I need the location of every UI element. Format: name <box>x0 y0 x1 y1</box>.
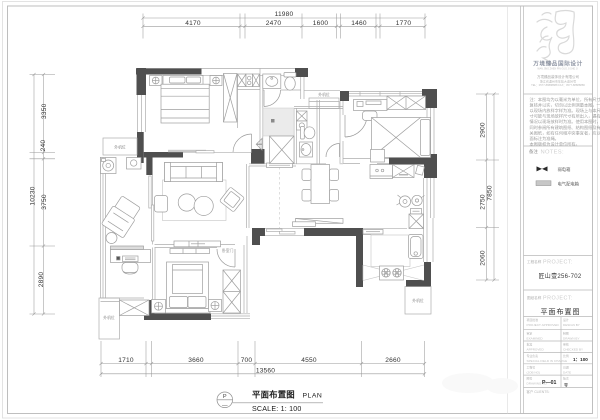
svg-text:P—01: P—01 <box>542 380 557 386</box>
svg-text:工程号: 工程号 <box>527 364 536 369</box>
svg-text:APPROVED: APPROVED <box>527 348 545 352</box>
svg-text:零: 零 <box>564 381 568 387</box>
svg-text:WAN JING ZHEN PIN GUO JI SHE J: WAN JING ZHEN PIN GUO JI SHE JI <box>537 67 577 70</box>
svg-text:CHECKED BY: CHECKED BY <box>563 348 583 352</box>
svg-text:弱电箱: 弱电箱 <box>558 166 572 173</box>
svg-text:卧室门: 卧室门 <box>222 248 234 253</box>
svg-text:TEL：0577-88888888 FAX：0577-88: TEL：0577-88888888 FAX：0577-88888886 <box>531 83 585 87</box>
svg-text:万境臻品国际设计: 万境臻品国际设计 <box>532 59 583 67</box>
svg-text:万境臻品装饰设计有限公司: 万境臻品装饰设计有限公司 <box>537 74 579 79</box>
svg-text:2060: 2060 <box>480 250 487 266</box>
svg-text:设计: 设计 <box>563 317 569 322</box>
svg-text:1710: 1710 <box>118 357 134 364</box>
svg-text:10230: 10230 <box>30 186 37 205</box>
svg-text:专业负责: 专业负责 <box>527 353 539 358</box>
svg-text:3660: 3660 <box>188 357 204 364</box>
svg-text:SPECIAL FIELD IN CHARGE: SPECIAL FIELD IN CHARGE <box>527 359 568 363</box>
svg-text:图号: 图号 <box>527 376 533 381</box>
svg-text:PROJECT:: PROJECT: <box>543 296 573 302</box>
svg-text:DRAWN BY: DRAWN BY <box>563 336 580 340</box>
svg-text:NOTES:: NOTES: <box>541 149 564 155</box>
svg-text:2890: 2890 <box>38 272 45 288</box>
svg-text:外机位: 外机位 <box>412 298 424 303</box>
svg-text:审定: 审定 <box>527 330 533 335</box>
svg-text:外机位: 外机位 <box>318 92 330 97</box>
svg-text:PROJECT APPROVED: PROJECT APPROVED <box>527 323 560 327</box>
svg-text:4550: 4550 <box>301 357 317 364</box>
svg-text:DESIGN BY: DESIGN BY <box>563 323 580 327</box>
svg-text:项目批准: 项目批准 <box>527 317 539 322</box>
svg-text:电气配电箱: 电气配电箱 <box>558 180 580 187</box>
svg-text:1770: 1770 <box>396 20 412 27</box>
svg-text:平面布置图: 平面布置图 <box>252 390 295 400</box>
svg-text:平面布置图: 平面布置图 <box>541 307 581 316</box>
svg-text:DATE: DATE <box>563 370 571 374</box>
svg-text:审核: 审核 <box>563 342 569 347</box>
svg-text:EXAMINED: EXAMINED <box>527 336 544 340</box>
svg-text:P: P <box>223 394 227 400</box>
svg-text:3750: 3750 <box>41 194 48 210</box>
svg-text:4170: 4170 <box>185 20 201 27</box>
svg-text:(JOB NO): (JOB NO) <box>527 370 541 374</box>
svg-text:日期: 日期 <box>563 364 569 369</box>
svg-text:2750: 2750 <box>480 194 487 210</box>
svg-text:—: — <box>222 403 228 409</box>
svg-text:制图: 制图 <box>563 330 569 335</box>
svg-text:2660: 2660 <box>385 357 401 364</box>
svg-text:11980: 11980 <box>275 11 294 18</box>
svg-text:浙江省温州市车站大道56号: 浙江省温州市车站大道56号 <box>540 79 576 84</box>
svg-text:1600: 1600 <box>313 20 329 27</box>
svg-text:13560: 13560 <box>256 368 275 375</box>
svg-text:3350: 3350 <box>41 103 48 119</box>
svg-text:1：100: 1：100 <box>573 357 588 362</box>
svg-text:图纸名称: 图纸名称 <box>527 295 542 300</box>
svg-text:PROJECT:: PROJECT: <box>543 260 573 266</box>
svg-text:外机位: 外机位 <box>103 315 115 320</box>
svg-text:版次: 版次 <box>563 376 569 381</box>
svg-text:客户 CLIENTS:: 客户 CLIENTS: <box>527 389 550 394</box>
svg-text:本图版权为设计单位所有。: 本图版权为设计单位所有。 <box>530 140 580 147</box>
svg-text:7850: 7850 <box>487 185 494 201</box>
svg-text:2900: 2900 <box>480 122 487 138</box>
svg-text:备注: 备注 <box>529 148 538 155</box>
svg-text:240: 240 <box>40 140 47 152</box>
svg-text:工程名称: 工程名称 <box>527 259 542 264</box>
svg-text:1460: 1460 <box>351 20 367 27</box>
svg-text:比例: 比例 <box>563 353 569 358</box>
svg-text:批准: 批准 <box>527 342 533 347</box>
svg-text:PLAN: PLAN <box>303 392 323 399</box>
svg-text:2470: 2470 <box>266 20 282 27</box>
svg-text:外机位: 外机位 <box>114 145 126 150</box>
svg-text:700: 700 <box>241 357 253 364</box>
svg-text:SCALE: 1: 100: SCALE: 1: 100 <box>252 405 302 413</box>
svg-text:匠山壹256-702: 匠山壹256-702 <box>538 272 581 280</box>
